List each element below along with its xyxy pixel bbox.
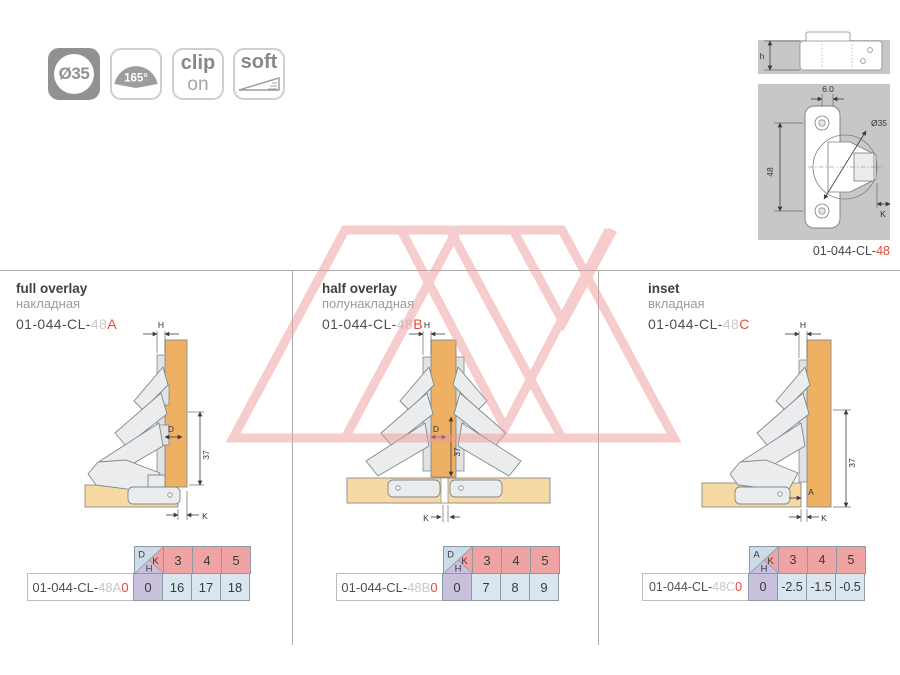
catalog-page: Ø35 165° clip on soft [0,0,900,675]
svg-text:D: D [447,550,454,561]
top-part-number: 01-044-CL-48 [813,244,890,258]
title-en: half overlay [322,281,592,296]
table-spacer [642,546,749,574]
header-divider [0,270,900,271]
cabinet-panel [165,340,187,487]
value-cell: 9 [529,573,559,601]
value-cell: 7 [471,573,501,601]
dim-h: H [800,320,806,330]
k-col-header: 3 [163,546,193,574]
svg-text:K: K [767,556,774,567]
title-en: inset [648,281,900,296]
door-panels [347,478,550,503]
h-value-cell: 0 [133,573,163,601]
dim-d: D [433,424,439,434]
k-col-header: 5 [221,546,251,574]
value-cell: 18 [220,573,250,601]
svg-text:H: H [761,564,768,574]
table-value-row: 01-044-CL-48B0 0 7 8 9 [336,573,560,601]
hinge-cup-right [450,480,502,497]
k-col-header: 3 [472,546,502,574]
title-en: full overlay [16,281,286,296]
svg-text:A: A [753,550,760,561]
inset-table: A K H 3 4 5 01-044-CL-48C0 0 -2.5 -1.5 -… [642,546,866,601]
dim-h: H [158,320,164,330]
k-col-header: 5 [836,546,866,574]
k-col-header: 4 [192,546,222,574]
dim-hole-label: 6.0 [822,84,834,94]
k-col-header: 3 [778,546,808,574]
svg-text:H: H [146,564,153,574]
opening-angle-label: 165° [124,73,148,85]
dim-cup-label: Ø35 [871,118,887,128]
dim-h-label: h [760,51,765,61]
dim-k: K [423,513,429,523]
half-overlay-drawing: H D 37 K [330,315,570,530]
h-value-cell: 0 [748,573,778,601]
dim-h: H [424,320,430,330]
cup-diameter-circle: Ø35 [54,54,94,94]
title-ru: полунакладная [322,296,592,311]
angle-fan-icon: 165° [112,50,160,98]
on-label: on [174,75,222,95]
row-part-number: 01-044-CL-48B0 [336,573,443,601]
table-spacer [27,546,134,574]
soft-label: soft [235,51,283,74]
inset-drawing: H 37 A K [690,315,895,530]
table-value-row: 01-044-CL-48A0 0 16 17 18 [27,573,251,601]
svg-text:H: H [455,564,462,574]
cup-diameter-label: Ø35 [59,64,90,84]
row-part-number: 01-044-CL-48A0 [27,573,134,601]
cup-diameter-icon: Ø35 [48,48,100,100]
corner-split-icon: D K H [135,547,163,573]
svg-text:D: D [138,550,145,561]
table-corner-cell: A K H [749,546,779,574]
k-col-header: 4 [501,546,531,574]
dim-k: K [202,511,208,521]
table-header-row: D K H 3 4 5 [336,546,560,574]
opening-angle-icon: 165° [110,48,162,100]
soft-close-damper-icon [235,74,283,94]
value-cell: -0.5 [835,573,865,601]
title-ru: накладная [16,296,286,311]
dim-a: A [808,487,814,497]
h-value-cell: 0 [442,573,472,601]
value-cell: -1.5 [806,573,836,601]
k-col-header: 5 [530,546,560,574]
table-corner-cell: D K H [134,546,164,574]
svg-text:K: K [152,556,159,567]
table-spacer [336,546,443,574]
full-overlay-table: D K H 3 4 5 01-044-CL-48A0 0 16 17 18 [27,546,251,601]
dim-37: 37 [201,450,211,460]
table-value-row: 01-044-CL-48C0 0 -2.5 -1.5 -0.5 [642,573,866,601]
title-ru: вкладная [648,296,900,311]
dim-37: 37 [847,458,857,468]
value-cell: 17 [191,573,221,601]
full-overlay-drawing: H D 37 K [70,315,305,530]
row-part-number: 01-044-CL-48C0 [642,573,749,601]
svg-text:K: K [461,556,468,567]
soft-close-icon: soft [233,48,285,100]
dim-d: D [168,424,174,434]
corner-split-icon: A K H [750,547,778,573]
table-corner-cell: D K H [443,546,473,574]
value-cell: 8 [500,573,530,601]
value-cell: -2.5 [777,573,807,601]
half-overlay-table: D K H 3 4 5 01-044-CL-48B0 0 7 8 9 [336,546,560,601]
corner-split-icon: D K H [444,547,472,573]
cabinet-panel [807,340,831,507]
table-header-row: A K H 3 4 5 [642,546,866,574]
clip-on-icon: clip on [172,48,224,100]
clip-label: clip [174,52,222,75]
dim-k-label: K [880,209,886,219]
k-col-header: 4 [807,546,837,574]
value-cell: 16 [162,573,192,601]
table-header-row: D K H 3 4 5 [27,546,251,574]
dim-k: K [821,513,827,523]
dim-48-label: 48 [765,167,775,177]
mounting-drawing: h 6.0 48 Ø35 K 01-044-CL-48 [750,28,895,260]
dim-37: 37 [452,447,462,457]
column-divider-2 [598,270,599,645]
